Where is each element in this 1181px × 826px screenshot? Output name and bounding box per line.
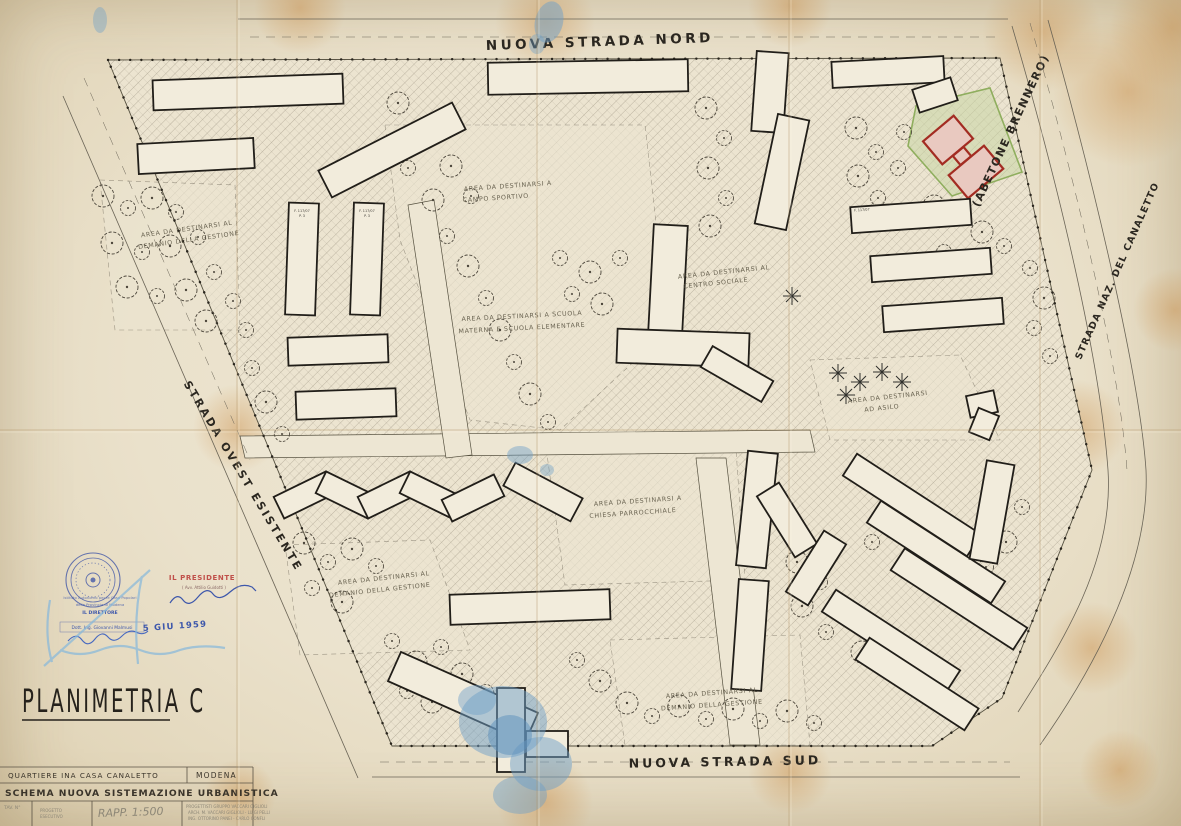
building xyxy=(450,589,611,625)
office-stamp-line2: della Provincia di Modena xyxy=(76,602,125,607)
building xyxy=(831,56,944,88)
building-floors: P. 3 xyxy=(299,214,305,218)
building xyxy=(296,388,397,419)
stamps-area: IL PRESIDENTE ( Avv. Attilio Guidotti ) … xyxy=(44,553,256,666)
title-block-note1: PROGETTO xyxy=(40,808,62,813)
building xyxy=(288,334,389,365)
site-plan-drawing: F. 117/07 P. 3 F. 117/07 P. 3 F. 117/07 … xyxy=(0,0,1181,826)
scanned-plan-sheet: F. 117/07 P. 3 F. 117/07 P. 3 F. 117/07 … xyxy=(0,0,1181,826)
building-code: F. 117/07 xyxy=(294,209,310,213)
building xyxy=(285,203,319,316)
office-stamp-line1: Istituto Autonomo per le Case Popolari xyxy=(63,595,136,600)
title-block-tav: TAV. N° xyxy=(3,805,21,811)
building xyxy=(153,74,344,111)
date-stamp: 5 GIU 1959 xyxy=(143,620,208,634)
building-code: F. 117/07 xyxy=(359,209,375,213)
title-block-designers-1: PROGETTISTI GRUPPO VACCARI GIGLIOLI xyxy=(186,804,268,809)
title-block-note2: ESECUTIVO xyxy=(40,814,63,819)
title-block-designers-2: ARCH. M. VACCARI GIGLIOLI - LUIGI PELLI xyxy=(188,810,270,815)
building xyxy=(350,203,384,316)
building xyxy=(731,579,769,691)
building xyxy=(488,59,689,94)
building-floors: P. 3 xyxy=(364,214,370,218)
sheet-title: PLANIMETRIA C xyxy=(22,683,206,720)
title-block-project: QUARTIERE INA CASA CANALETTO xyxy=(8,771,159,780)
director-name: Dott. Ing. Giovanni Malmusi xyxy=(71,625,132,631)
president-name: ( Avv. Attilio Guidotti ) xyxy=(182,585,226,590)
president-title: IL PRESIDENTE xyxy=(169,574,235,582)
page-title: PLANIMETRIA C xyxy=(22,683,206,720)
title-block-scale: RAPP. 1:500 xyxy=(98,805,164,820)
title-block-designers-3: ING. OTTORINO PANEI - CARLO CONFLI xyxy=(188,816,265,821)
title-block-city: MODENA xyxy=(196,771,237,780)
